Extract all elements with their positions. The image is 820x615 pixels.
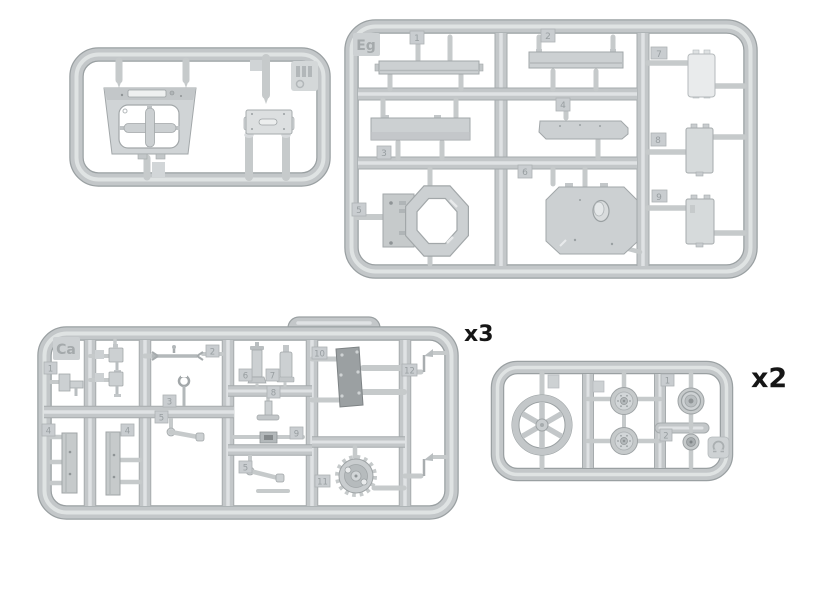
part-tag: 4 <box>560 101 566 111</box>
blank-tag <box>95 373 104 382</box>
beveled-plank-part-4 <box>539 121 628 139</box>
road-wheel-part-upper <box>611 388 638 415</box>
long-bar-part-3 <box>371 115 470 140</box>
idler-wheel-part <box>512 395 572 455</box>
blank-tag <box>95 350 104 359</box>
part-tag: 9 <box>294 430 299 440</box>
part-tag: 6 <box>243 372 248 382</box>
cylinder-part-7 <box>277 345 294 387</box>
part-tag: 11 <box>317 478 328 488</box>
part-tag: 10 <box>314 350 325 360</box>
small-wheel-part <box>683 434 699 450</box>
material-stamp-icon <box>708 437 729 458</box>
antenna-part-12a <box>424 349 433 372</box>
part-tag: 12 <box>404 367 415 377</box>
part-tag: 2 <box>210 348 215 358</box>
dark-plate-part-10 <box>336 347 363 407</box>
mold-stamp-icon <box>291 61 318 91</box>
road-wheel-part-lower <box>611 428 638 455</box>
part-tag: 2 <box>663 432 668 442</box>
sprue-b-id-label: Eg <box>356 38 376 54</box>
hatch-plate-part-8 <box>686 124 713 176</box>
sprue-d-quantity-label: x2 <box>751 363 787 394</box>
turnbuckle-part-2 <box>152 345 203 360</box>
part-tag: 5 <box>356 206 362 216</box>
sprue-c-quantity-label: x3 <box>464 322 494 347</box>
part-tag: 4 <box>46 427 51 437</box>
part-tag: 5 <box>159 414 164 424</box>
octagon-ring-part-5 <box>383 186 468 256</box>
part-tag: 1 <box>414 34 420 44</box>
part-tag: 1 <box>665 377 670 387</box>
sprocket-wheel-part-11 <box>337 457 375 495</box>
t-stand-part-8 <box>257 395 279 420</box>
blank-tag <box>593 381 604 392</box>
pin-block-part-a <box>109 344 123 373</box>
part-tag: 7 <box>270 372 275 382</box>
long-bar-part-1 <box>375 61 483 74</box>
hatch-plate-part-7 <box>688 50 715 98</box>
antenna-part-12b <box>424 453 433 476</box>
blank-tag <box>152 162 165 177</box>
plank-part-4b <box>106 432 120 495</box>
return-roller-part <box>678 388 704 414</box>
hatch-plate-part-9 <box>686 195 714 247</box>
part-tag: 3 <box>167 398 172 408</box>
part-tag: 2 <box>545 32 551 42</box>
part-tag: 1 <box>48 365 53 375</box>
hex-plate-part-6 <box>546 183 637 254</box>
instruction-sheet: Eg <box>0 0 820 615</box>
bracket-part-1 <box>59 374 83 396</box>
part-tag: 6 <box>522 168 528 178</box>
pin-block-part-b <box>109 372 123 397</box>
plank-part-4a <box>62 433 77 493</box>
sprue-c-id-label: Ca <box>56 342 76 358</box>
hook-part-3 <box>179 373 189 406</box>
part-tag: 9 <box>656 193 662 203</box>
sprue-diagram: Eg <box>0 0 820 615</box>
mount-plate-part <box>244 110 294 134</box>
long-bar-part-2 <box>529 49 623 68</box>
blank-tag <box>250 60 264 71</box>
part-tag: 8 <box>271 389 276 399</box>
sprue-d: 1 2 <box>498 368 730 475</box>
blank-tag <box>548 375 559 388</box>
part-tag: 7 <box>656 50 662 60</box>
part-tag: 8 <box>655 136 661 146</box>
arm-part-5a <box>167 418 204 441</box>
sprue-d-runners <box>588 374 704 468</box>
part-tag: 5 <box>243 464 248 474</box>
part-tag: 4 <box>125 427 130 437</box>
sprue-c: Ca <box>42 317 452 513</box>
sprue-a <box>77 55 324 180</box>
part-tag: 3 <box>381 149 387 159</box>
sprue-b: Eg <box>352 27 751 272</box>
rod-block-part-9 <box>260 432 277 443</box>
